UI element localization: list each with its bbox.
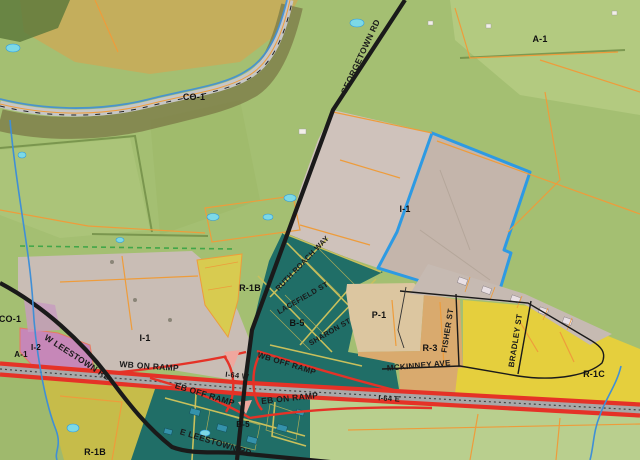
farm-building xyxy=(486,24,491,28)
pond xyxy=(284,195,296,202)
zone-label-r-1c: R-1C xyxy=(583,369,605,379)
pond xyxy=(116,238,124,243)
pond xyxy=(67,424,79,432)
zone-label-r-1b: R-1B xyxy=(84,447,106,457)
pond xyxy=(350,19,364,27)
pond xyxy=(18,152,26,158)
zone-label-co-1: CO-1 xyxy=(183,92,205,102)
farm-spot xyxy=(133,298,137,302)
zone-label-i-2: I-2 xyxy=(31,343,41,352)
zone-label-r-3: R-3 xyxy=(422,343,437,353)
pond xyxy=(207,214,219,221)
farm-spot xyxy=(168,318,172,322)
zone-label-a-1: A-1 xyxy=(14,350,28,359)
zone-label-p-1: P-1 xyxy=(372,310,387,320)
zone-label-a-1: A-1 xyxy=(532,34,547,44)
farm-building xyxy=(428,21,433,25)
pond xyxy=(6,44,20,52)
zoning-map: CO-1A-1I-1I-1CO-1A-1I-2R-1BB-5P-1R-3R-1C… xyxy=(0,0,640,460)
zone-label-b-5: B-5 xyxy=(289,318,304,328)
zone-label-i-1: I-1 xyxy=(139,333,150,343)
farm-building xyxy=(612,11,617,15)
zone-label-b-5: B-5 xyxy=(236,420,250,429)
street-label-i-64-e: I-64 E xyxy=(378,393,400,403)
zone-label-r-1b: R-1B xyxy=(239,283,261,293)
zone-label-co-1: CO-1 xyxy=(0,314,21,324)
pond xyxy=(263,214,273,220)
farm-building xyxy=(299,129,306,134)
farm-spot xyxy=(110,260,114,264)
zoning-map-canvas: CO-1A-1I-1I-1CO-1A-1I-2R-1BB-5P-1R-3R-1C… xyxy=(0,0,640,460)
zone-label-i-1: I-1 xyxy=(399,204,410,214)
